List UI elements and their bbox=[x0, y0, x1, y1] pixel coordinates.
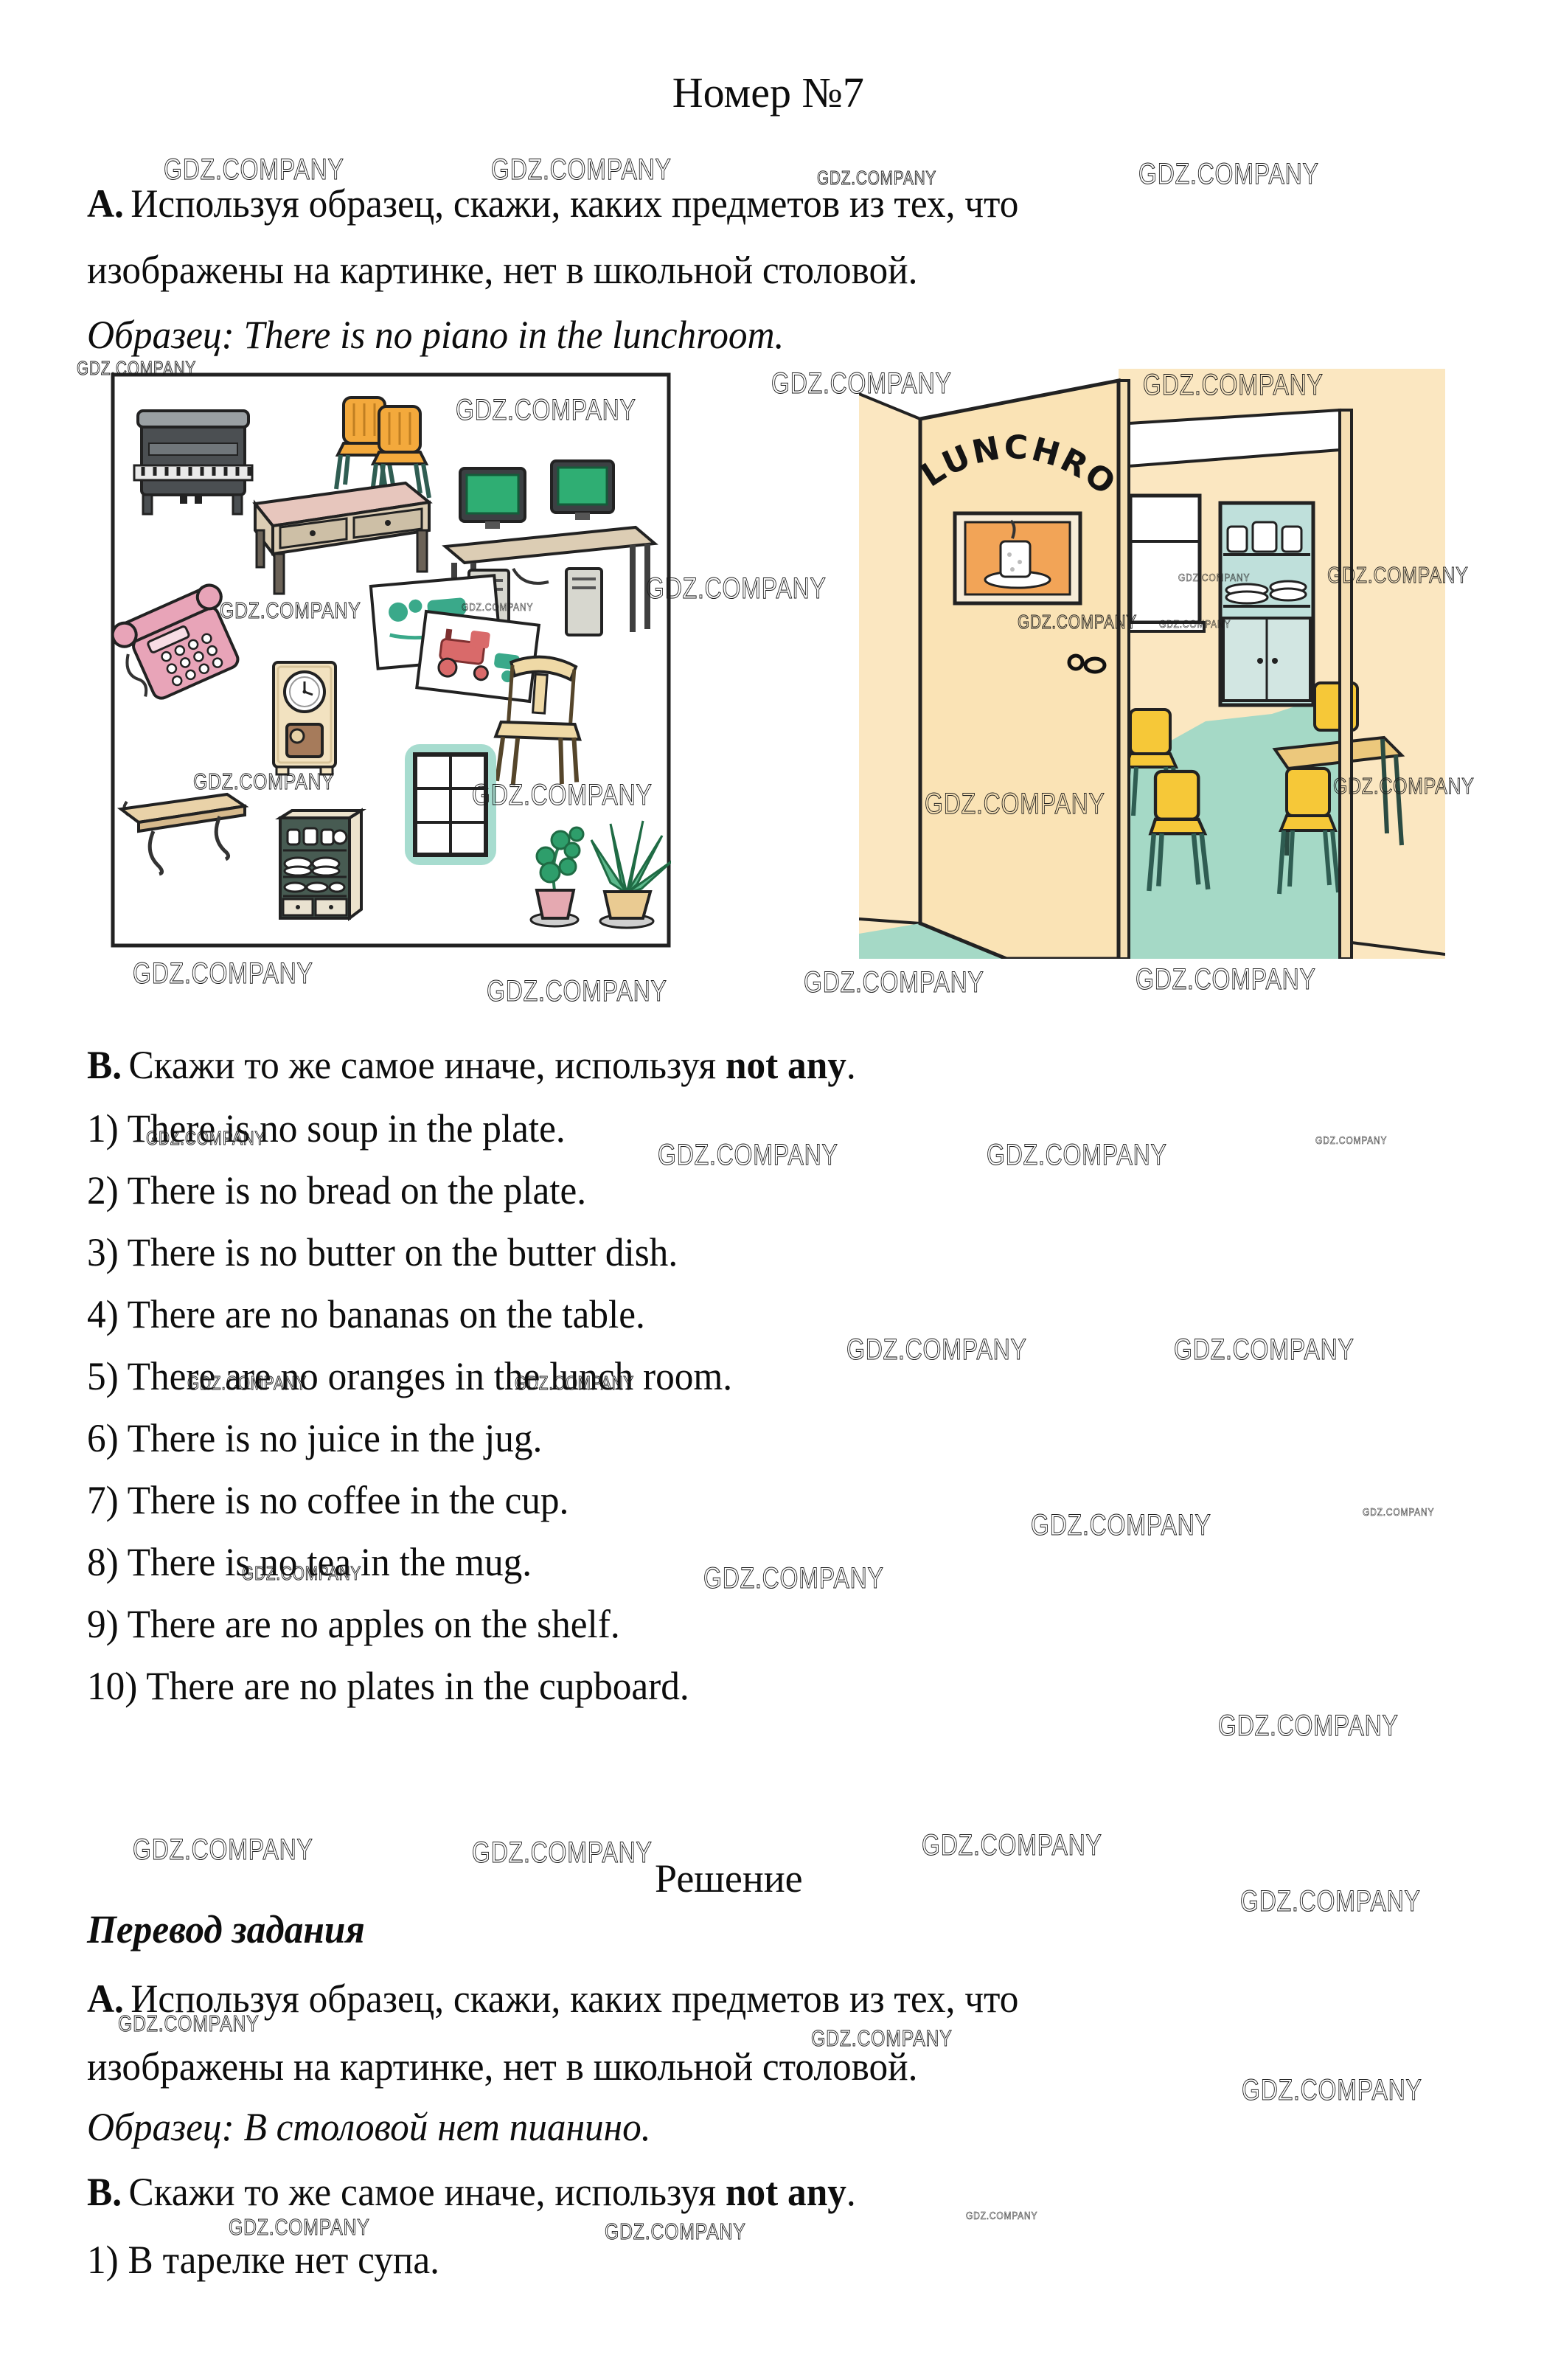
door-jamb bbox=[1340, 410, 1352, 959]
translation-a-line1: А.Используя образец, скажи, каких предме… bbox=[87, 1977, 1018, 2021]
watermark: GDZ.COMPANY bbox=[229, 2214, 370, 2241]
list-item: 7) There is no coffee in the cup. bbox=[87, 1478, 568, 1522]
list-item: 3) There is no butter on the butter dish… bbox=[87, 1230, 678, 1274]
list-item: 6) There is no juice in the jug. bbox=[87, 1416, 542, 1460]
watermark: GDZ.COMPANY bbox=[846, 1333, 1027, 1367]
watermark: GDZ.COMPANY bbox=[1174, 1333, 1355, 1367]
task-sample-english: Образец: There is no piano in the lunchr… bbox=[87, 313, 784, 357]
watermark: GDZ.COMPANY bbox=[703, 1562, 884, 1595]
lunchroom-picture: LUNCHROOM bbox=[859, 369, 1445, 959]
list-item: 10) There are no plates in the cupboard. bbox=[87, 1664, 689, 1708]
solution-label: Решение bbox=[655, 1856, 803, 1901]
translation-heading: Перевод задания bbox=[87, 1907, 365, 1951]
list-item: 5) There are no oranges in the lunch roo… bbox=[87, 1354, 732, 1398]
task-b-label: В. bbox=[87, 1043, 122, 1087]
task-b-heading: В.Скажи то же самое иначе, используя not… bbox=[87, 1043, 856, 1087]
watermark: GDZ.COMPANY bbox=[646, 572, 827, 606]
watermark: GDZ.COMPANY bbox=[1242, 2074, 1422, 2107]
translation-b-heading: В.Скажи то же самое иначе, используя not… bbox=[87, 2170, 856, 2214]
list-item: 9) There are no apples on the shelf. bbox=[87, 1602, 620, 1646]
translation-item-1: 1) В тарелке нет супа. bbox=[87, 2238, 439, 2282]
watermark: GDZ.COMPANY bbox=[605, 2218, 746, 2245]
list-item: 4) There are no bananas on the table. bbox=[87, 1292, 645, 1336]
watermark: GDZ.COMPANY bbox=[987, 1139, 1167, 1172]
task-a-line1: А.Используя образец, скажи, каких предме… bbox=[87, 181, 1018, 226]
watermark: GDZ.COMPANY bbox=[922, 1829, 1102, 1862]
watermark: GDZ.COMPANY bbox=[1363, 1506, 1434, 1519]
watermark: GDZ.COMPANY bbox=[804, 966, 984, 999]
clock-icon bbox=[274, 662, 335, 774]
objects-picture bbox=[111, 372, 671, 948]
list-item: 8) There is no tea in the mug. bbox=[87, 1540, 532, 1584]
watermark: GDZ.COMPANY bbox=[1138, 158, 1319, 191]
lunchroom-window-icon bbox=[1126, 496, 1204, 631]
translation-sample-russian: Образец: В столовой нет пианино. bbox=[87, 2105, 651, 2149]
watermark: GDZ.COMPANY bbox=[1315, 1134, 1387, 1147]
page-title: Номер №7 bbox=[672, 68, 864, 117]
watermark: GDZ.COMPANY bbox=[487, 975, 667, 1008]
worksheet-page: Номер №7 А.Используя образец, скажи, как… bbox=[0, 0, 1544, 2380]
watermark: GDZ.COMPANY bbox=[1136, 963, 1316, 996]
watermark: GDZ.COMPANY bbox=[966, 2210, 1037, 2222]
watermark: GDZ.COMPANY bbox=[1031, 1509, 1211, 1542]
watermark: GDZ.COMPANY bbox=[658, 1139, 838, 1172]
list-item: 2) There is no bread on the plate. bbox=[87, 1168, 586, 1212]
task-a-line2: изображены на картинке, нет в школьной с… bbox=[87, 248, 917, 292]
watermark: GDZ.COMPANY bbox=[133, 1833, 313, 1867]
lunchroom-cupboard-icon bbox=[1220, 503, 1313, 705]
watermark: GDZ.COMPANY bbox=[1240, 1885, 1421, 1918]
watermark: GDZ.COMPANY bbox=[472, 1836, 653, 1870]
dish-cupboard-icon bbox=[280, 811, 361, 918]
cup-picture-icon bbox=[955, 513, 1080, 603]
watermark: GDZ.COMPANY bbox=[1218, 1710, 1399, 1743]
watermark: GDZ.COMPANY bbox=[133, 957, 313, 990]
task-a-label: А. bbox=[87, 181, 124, 226]
translation-a-line2: изображены на картинке, нет в школьной с… bbox=[87, 2044, 917, 2089]
list-item: 1) There is no soup in the plate. bbox=[87, 1106, 566, 1151]
window-icon bbox=[405, 744, 496, 865]
